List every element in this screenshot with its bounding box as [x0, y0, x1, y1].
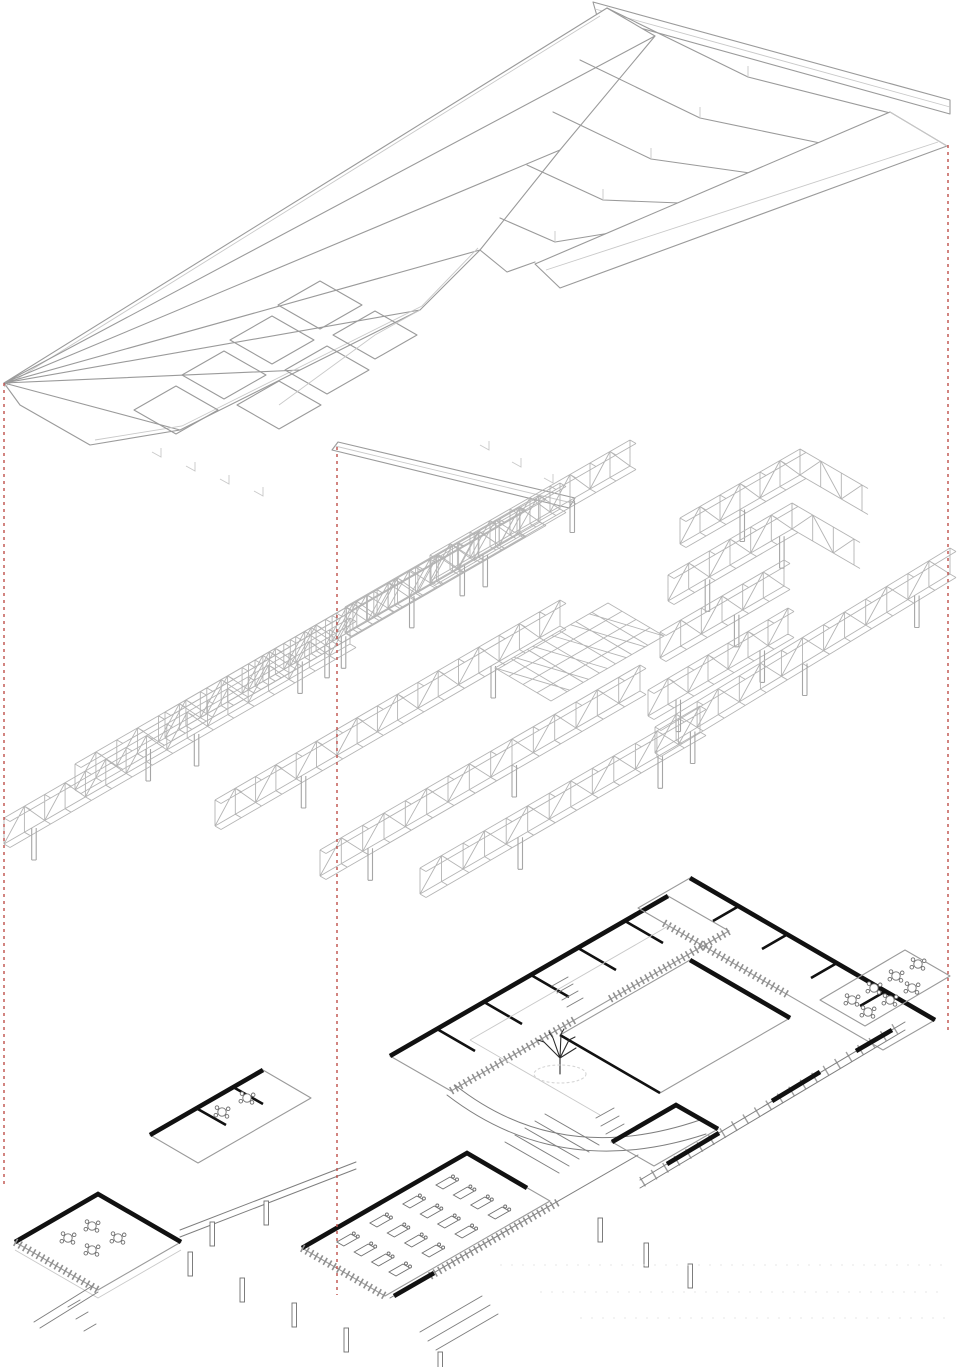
- cafe-table: [888, 970, 904, 982]
- cafe-table: [844, 994, 860, 1006]
- bridge: [180, 1162, 356, 1237]
- paving-texture: [500, 1265, 946, 1318]
- terrace: [820, 950, 950, 1026]
- central-hall: [560, 960, 790, 1093]
- table: [110, 1232, 126, 1244]
- desk: [370, 1213, 393, 1227]
- desk: [372, 1252, 395, 1266]
- classroom-desks: [337, 1175, 511, 1276]
- roof-main-sheet: [4, 8, 655, 445]
- table: [84, 1220, 100, 1232]
- desk: [422, 1243, 445, 1257]
- cafe-table: [882, 994, 898, 1006]
- desk: [403, 1194, 426, 1208]
- desk: [471, 1195, 494, 1209]
- pilotis-column: [644, 1243, 649, 1267]
- cafe-table: [860, 1006, 876, 1018]
- desk: [455, 1224, 478, 1238]
- truss-layer: Space-frame truss structure: [4, 440, 956, 898]
- desk: [453, 1185, 476, 1199]
- truss-canopy-grid: [495, 603, 664, 701]
- roof-ridge-bar-top: [593, 2, 950, 114]
- pilotis-column: [344, 1328, 349, 1352]
- roof-layer: Folded plate roof: [4, 2, 950, 508]
- desk: [420, 1204, 443, 1218]
- desk: [354, 1242, 377, 1256]
- room-tables: [60, 1092, 255, 1256]
- table: [60, 1232, 76, 1244]
- pilotis-column: [688, 1264, 693, 1288]
- desk: [389, 1262, 412, 1276]
- pilotis-column: [210, 1222, 215, 1246]
- pilotis-column: [240, 1278, 245, 1302]
- south-steps: [420, 1296, 498, 1350]
- west-rooms: [150, 1070, 311, 1163]
- truss-bands: [4, 440, 956, 898]
- desk: [488, 1205, 511, 1219]
- pilotis-column: [438, 1352, 443, 1367]
- roof-ridge-bar-lower: [535, 112, 947, 288]
- desk: [337, 1232, 360, 1246]
- table: [214, 1106, 230, 1118]
- pilotis-column: [188, 1252, 193, 1276]
- pilotis-column: [292, 1303, 297, 1327]
- classroom-block: [302, 1153, 550, 1350]
- north-wing-stair-hatch: [552, 977, 583, 1007]
- cafe-table: [910, 958, 926, 970]
- pilotis-column: [598, 1218, 603, 1242]
- cafe-table: [904, 982, 920, 994]
- pergola-trellis: [505, 1114, 599, 1173]
- building-layer: Ground level with courtyards: [15, 878, 950, 1367]
- courtyard-ramp: [447, 1085, 706, 1151]
- drawing-canvas: Folded plate roof: [0, 0, 960, 1367]
- table: [84, 1244, 100, 1256]
- desk: [387, 1223, 410, 1237]
- desk: [436, 1175, 459, 1189]
- detached-room: [15, 1092, 255, 1331]
- pilotis-column: [264, 1201, 269, 1225]
- desk: [438, 1214, 461, 1228]
- exploded-axonometric-drawing: Folded plate roof: [0, 0, 960, 1367]
- desk: [405, 1233, 428, 1247]
